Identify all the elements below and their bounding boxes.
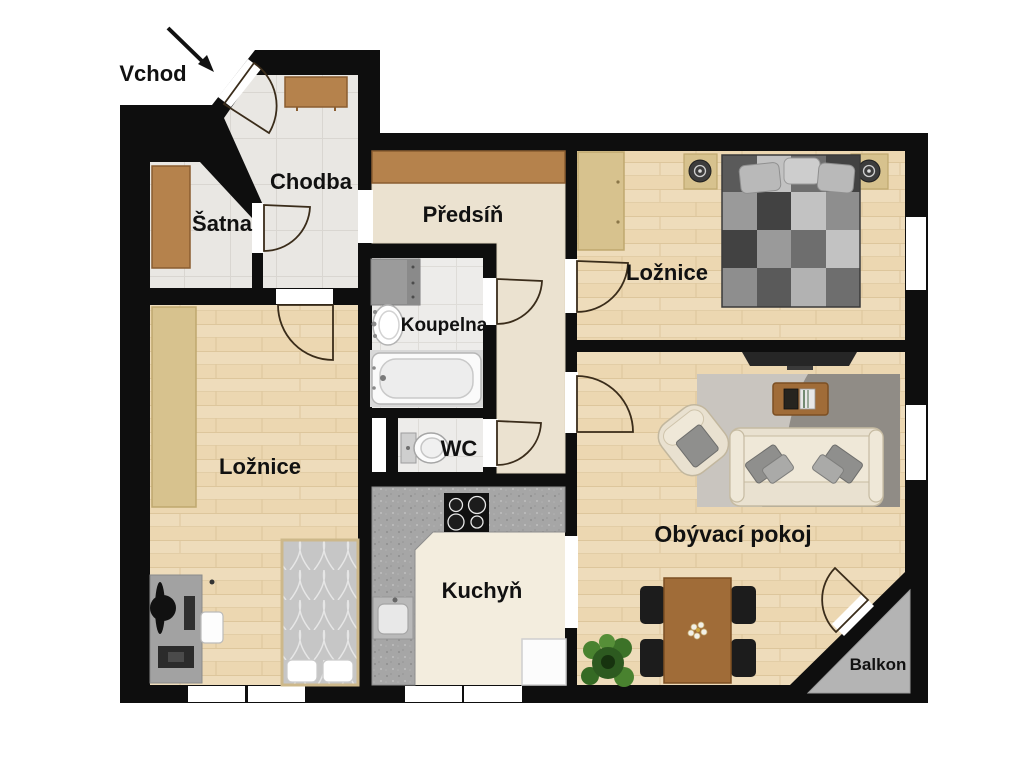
bedroom-left-door-threshold bbox=[276, 289, 333, 304]
dining-chair bbox=[640, 586, 665, 624]
washing-machine bbox=[371, 259, 420, 305]
single-bed bbox=[282, 540, 358, 685]
kitchen-living-opening bbox=[565, 536, 578, 628]
bathtub bbox=[370, 350, 483, 407]
label-entrance: Vchod bbox=[119, 61, 186, 86]
label-anteroom: Předsíň bbox=[423, 202, 504, 227]
window-kitchen-2 bbox=[464, 686, 522, 702]
sofa bbox=[730, 428, 883, 506]
dining-chair bbox=[640, 639, 665, 677]
nightstand-left bbox=[684, 154, 717, 189]
closet-door-threshold bbox=[252, 203, 264, 253]
book bbox=[784, 389, 798, 409]
window-living bbox=[906, 405, 926, 480]
floor-plan: Vchod Chodba Šatna Předsíň Koupelna WC L… bbox=[0, 0, 1024, 768]
pillow bbox=[323, 660, 353, 682]
cooktop bbox=[444, 493, 489, 532]
closet-wardrobe bbox=[152, 166, 190, 268]
pillow bbox=[287, 660, 317, 682]
side-chair bbox=[201, 612, 223, 643]
window-bedroom-left-2 bbox=[248, 686, 305, 702]
dining-chair bbox=[731, 586, 756, 624]
wc-door-threshold bbox=[483, 419, 498, 467]
label-bedroom-right: Ložnice bbox=[626, 260, 708, 285]
label-bedroom-left: Ložnice bbox=[219, 454, 301, 479]
label-bathroom: Koupelna bbox=[401, 315, 488, 336]
pillow bbox=[739, 162, 782, 194]
label-living-room: Obývací pokoj bbox=[654, 521, 811, 547]
anteroom-wardrobe bbox=[372, 151, 565, 183]
window-bedroom-left-1 bbox=[188, 686, 245, 702]
double-bed bbox=[722, 155, 860, 307]
coffee-table bbox=[773, 383, 828, 415]
floor-plan-page: Vchod Chodba Šatna Předsíň Koupelna WC L… bbox=[0, 0, 1024, 768]
label-closet: Šatna bbox=[192, 211, 253, 236]
label-wc: WC bbox=[441, 436, 478, 461]
label-hallway: Chodba bbox=[270, 169, 353, 194]
shaft bbox=[372, 418, 386, 472]
label-balcony: Balkon bbox=[850, 655, 907, 674]
dining-chair bbox=[731, 639, 756, 677]
window-kitchen-1 bbox=[405, 686, 462, 702]
hallway-anteroom-opening bbox=[358, 190, 373, 243]
hallway-cabinet bbox=[285, 77, 347, 107]
bedroom-right-wardrobe bbox=[578, 152, 624, 250]
bedroom-right-door-threshold bbox=[565, 259, 578, 313]
kitchen-cabinet bbox=[522, 639, 566, 685]
kitchen-sink bbox=[373, 597, 413, 639]
window-bedroom-right bbox=[906, 217, 926, 290]
pillow bbox=[784, 158, 820, 184]
pillow bbox=[817, 162, 855, 193]
bedroom-left-wardrobe bbox=[152, 307, 196, 507]
monitor bbox=[184, 596, 195, 630]
label-kitchen: Kuchyň bbox=[442, 578, 523, 603]
living-door-threshold bbox=[565, 372, 578, 433]
